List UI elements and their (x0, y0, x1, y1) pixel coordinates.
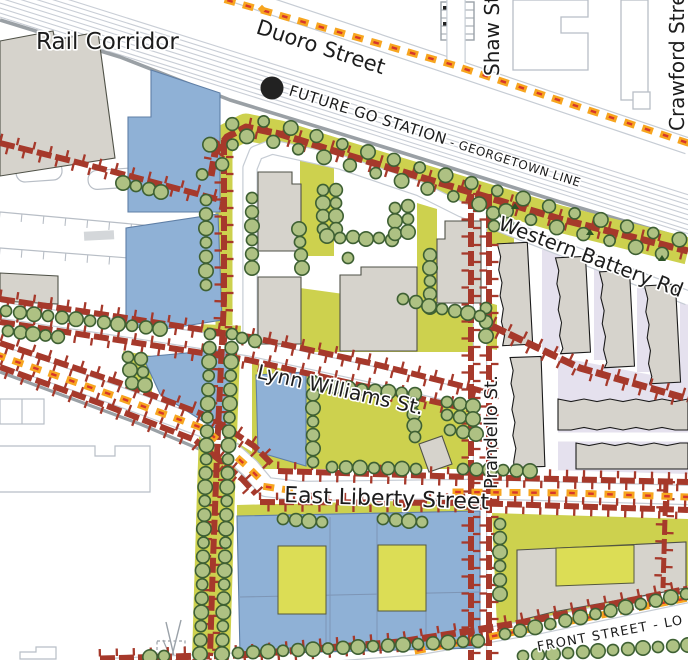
future-go-station-marker (261, 77, 284, 100)
label-prandello-st: Prandello St. (481, 375, 502, 489)
go-station (261, 77, 284, 100)
label-crawford-street: Crawford Street (665, 0, 688, 131)
map-canvas: Rail Corridor Duoro Street Shaw Street C… (0, 0, 688, 660)
plan-map-svg: Rail Corridor Duoro Street Shaw Street C… (0, 0, 688, 660)
label-shaw-street: Shaw Street (480, 0, 504, 76)
label-rail-corridor: Rail Corridor (36, 29, 179, 55)
